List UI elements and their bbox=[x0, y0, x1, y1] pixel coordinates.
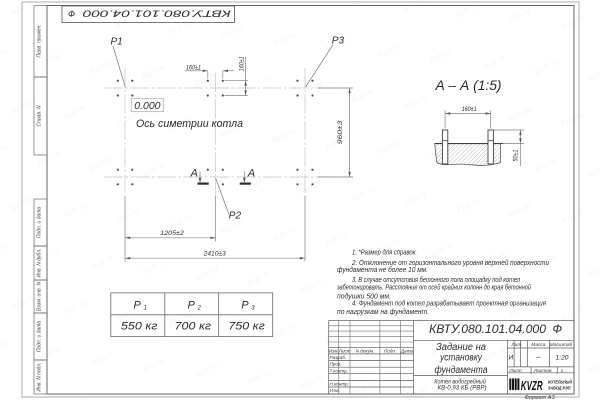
svg-text:Инв. N дубл.: Инв. N дубл. bbox=[37, 249, 43, 278]
svg-text:Разраб.: Разраб. bbox=[330, 355, 347, 360]
svg-text:Формат А3: Формат А3 bbox=[524, 395, 555, 400]
svg-text:ЗАВОД РЭП: ЗАВОД РЭП bbox=[548, 385, 571, 390]
svg-text:фундамента не более 10 мм.: фундамента не более 10 мм. bbox=[337, 265, 428, 274]
svg-text:КВ-0,93 КБ (РВР): КВ-0,93 КБ (РВР) bbox=[438, 385, 487, 391]
svg-text:Справ. N: Справ. N bbox=[37, 105, 43, 126]
svg-text:фундамента: фундамента bbox=[435, 364, 488, 376]
svg-text:Подп.: Подп. bbox=[384, 348, 396, 353]
svg-text:Лист: Лист bbox=[508, 368, 521, 374]
svg-text:Перв. примен.: Перв. примен. bbox=[37, 24, 43, 57]
svg-text:Изм.Лист: Изм.Лист bbox=[329, 348, 351, 353]
svg-text:Масштаб: Масштаб bbox=[550, 342, 573, 348]
svg-text:Котел водогрейный: Котел водогрейный bbox=[434, 378, 486, 385]
svg-text:Т.контр.: Т.контр. bbox=[330, 368, 349, 373]
svg-text:установку: установку bbox=[439, 353, 483, 364]
svg-text:Пров.: Пров. bbox=[330, 362, 342, 367]
svg-text:Взам. инв. N: Взам. инв. N bbox=[37, 282, 43, 312]
svg-text:–: – bbox=[535, 354, 540, 361]
svg-text:KVZR: KVZR bbox=[521, 379, 543, 393]
svg-text:960±3: 960±3 bbox=[337, 120, 344, 144]
svg-text:Листов: Листов bbox=[533, 368, 552, 374]
svg-text:Ось симетрии котла: Ось симетрии котла bbox=[136, 118, 243, 130]
svg-text:160±1: 160±1 bbox=[238, 56, 245, 71]
svg-text:И: И bbox=[508, 355, 513, 362]
svg-text:750 кг: 750 кг bbox=[228, 321, 265, 333]
svg-text:1. *Размер для справок.: 1. *Размер для справок. bbox=[352, 248, 417, 257]
svg-text:КВТУ.080.101.04.000: КВТУ.080.101.04.000 bbox=[429, 322, 546, 336]
svg-text:P2: P2 bbox=[229, 211, 242, 222]
svg-text:КВТУ.080.101.04.000: КВТУ.080.101.04.000 bbox=[83, 9, 231, 19]
svg-text:КОТЕЛЬНЫЙ: КОТЕЛЬНЫЙ bbox=[548, 377, 572, 384]
svg-text:Утв.: Утв. bbox=[330, 388, 340, 393]
svg-text:700 кг: 700 кг bbox=[175, 321, 212, 333]
svg-text:Задание на: Задание на bbox=[436, 342, 486, 353]
svg-text:Дата: Дата bbox=[400, 348, 414, 353]
svg-text:P1: P1 bbox=[111, 37, 123, 48]
svg-text:А – А (1:5): А – А (1:5) bbox=[434, 78, 501, 93]
svg-text:160±1: 160±1 bbox=[186, 65, 201, 72]
svg-text:A: A bbox=[190, 168, 198, 180]
svg-text:160±1: 160±1 bbox=[462, 106, 477, 113]
svg-text:50±1: 50±1 bbox=[512, 149, 519, 161]
svg-text:Ф: Ф bbox=[553, 322, 563, 336]
svg-text:Инв. N подл.: Инв. N подл. bbox=[37, 362, 43, 391]
svg-text:550 кг: 550 кг bbox=[121, 321, 158, 333]
svg-text:2410±3: 2410±3 bbox=[203, 250, 226, 257]
svg-text:1: 1 bbox=[561, 368, 564, 374]
svg-text:A: A bbox=[247, 168, 255, 180]
svg-text:Н.контр.: Н.контр. bbox=[330, 382, 349, 387]
svg-text:Лит.: Лит. bbox=[510, 342, 522, 348]
svg-text:P3: P3 bbox=[332, 36, 345, 47]
svg-text:Подп. и дата: Подп. и дата bbox=[37, 207, 43, 239]
svg-text:1205±2: 1205±2 bbox=[160, 230, 184, 237]
svg-text:1:20: 1:20 bbox=[556, 355, 569, 362]
svg-text:N докум.: N докум. bbox=[356, 348, 375, 353]
svg-text:забетонировать. Расстояние от: забетонировать. Расстояние от осей крайн… bbox=[336, 283, 531, 292]
svg-text:0.000: 0.000 bbox=[134, 100, 160, 112]
svg-text:по нагрузкам на фундамент.: по нагрузкам на фундамент. bbox=[337, 307, 429, 316]
svg-text:Масса: Масса bbox=[531, 342, 546, 348]
svg-text:Подп. и дата: Подп. и дата bbox=[37, 321, 43, 353]
svg-text:Ф: Ф bbox=[68, 9, 75, 19]
